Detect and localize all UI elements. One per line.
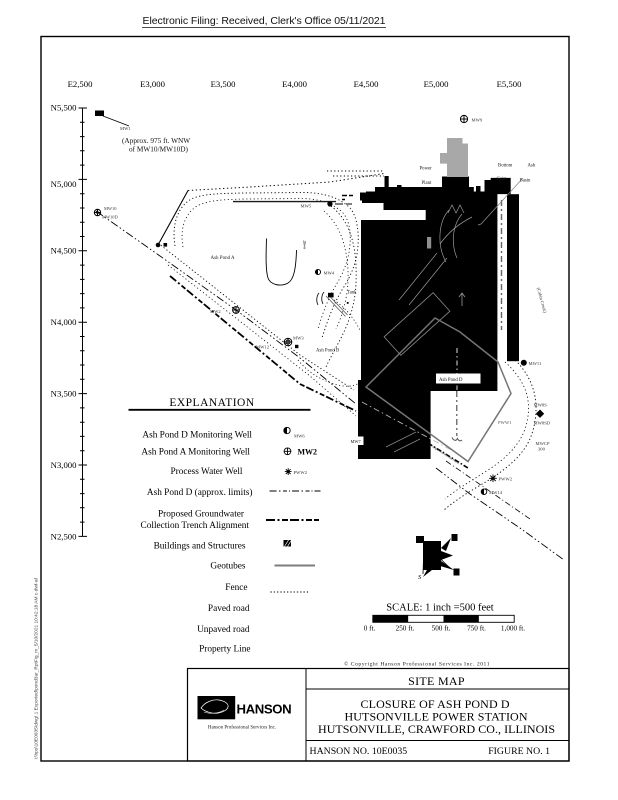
- svg-text:MW8SD: MW8SD: [534, 421, 551, 426]
- svg-text:Ash: Ash: [528, 164, 536, 169]
- svg-text:PWW2: PWW2: [499, 477, 513, 482]
- svg-text:MW8S: MW8S: [534, 403, 548, 408]
- svg-text:Proposed Groundwater: Proposed Groundwater: [158, 509, 245, 519]
- svg-text:MW7: MW7: [351, 439, 362, 444]
- svg-text:Paved road: Paved road: [208, 604, 250, 614]
- svg-text:E3,000: E3,000: [140, 79, 166, 89]
- svg-text:Ash Pond B: Ash Pond B: [316, 349, 339, 354]
- svg-text:I:\hps\10E0035\dwg\ 1 Exported: I:\hps\10E0035\dwg\ 1 Exported\pond3ar_R…: [34, 577, 40, 759]
- svg-text:1,000 ft.: 1,000 ft.: [501, 625, 525, 633]
- svg-text:750 ft.: 750 ft.: [467, 625, 486, 633]
- svg-text:N3,000: N3,000: [51, 460, 77, 470]
- svg-text:E5,500: E5,500: [497, 79, 523, 89]
- svg-text:Power: Power: [420, 167, 433, 172]
- svg-text:Buildings and Structures: Buildings and Structures: [154, 542, 246, 552]
- svg-text:N4,500: N4,500: [51, 246, 77, 256]
- svg-text:Ash Pond D: Ash Pond D: [439, 378, 463, 383]
- svg-text:N2,500: N2,500: [51, 532, 77, 542]
- svg-text:S: S: [418, 574, 422, 581]
- svg-text:MW14: MW14: [489, 490, 503, 495]
- svg-text:MW6: MW6: [294, 434, 305, 439]
- svg-text:SCALE: 1 inch =500 feet: SCALE: 1 inch =500 feet: [386, 603, 493, 614]
- svg-text:Ash Pond A Monitoring Well: Ash Pond A Monitoring Well: [141, 448, 250, 458]
- svg-text:Geotubes: Geotubes: [210, 561, 245, 571]
- svg-text:© Copyright Hanson Professi: © Copyright Hanson Professional Services…: [344, 661, 490, 668]
- svg-text:Plant: Plant: [422, 181, 433, 186]
- svg-text:E3,500: E3,500: [211, 79, 237, 89]
- svg-text:EXPLANATION: EXPLANATION: [169, 397, 255, 409]
- svg-text:PWW1: PWW1: [498, 420, 512, 425]
- svg-text:300: 300: [538, 447, 546, 452]
- svg-text:MW12: MW12: [256, 345, 270, 350]
- svg-text:MW4: MW4: [324, 271, 335, 276]
- svg-text:Ash Pond D Monitoring Well: Ash Pond D Monitoring Well: [142, 431, 252, 441]
- svg-text:MW2: MW2: [210, 309, 221, 314]
- svg-text:PWW2: PWW2: [294, 470, 308, 475]
- svg-text:MW1: MW1: [120, 126, 131, 131]
- svg-text:MW10D: MW10D: [102, 215, 118, 220]
- svg-text:Ash Pond A: Ash Pond A: [211, 256, 236, 261]
- svg-text:N4,000: N4,000: [51, 317, 77, 327]
- svg-text:Hanson Professional Services I: Hanson Professional Services Inc.: [208, 726, 276, 731]
- svg-text:Bottom: Bottom: [498, 164, 513, 169]
- svg-text:0 ft.: 0 ft.: [364, 625, 376, 633]
- svg-text:Fence: Fence: [225, 583, 247, 593]
- svg-text:N3,500: N3,500: [51, 389, 77, 399]
- svg-text:FIGURE NO. 1: FIGURE NO. 1: [488, 746, 550, 757]
- svg-text:MW9: MW9: [472, 118, 483, 123]
- svg-text:MW11: MW11: [529, 361, 543, 366]
- svg-text:E2,500: E2,500: [68, 79, 94, 89]
- svg-text:Property Line: Property Line: [199, 644, 250, 654]
- svg-text:Grim: Grim: [497, 177, 507, 182]
- svg-text:HUTSONVILLE, CRAWFORD CO., IL: HUTSONVILLE, CRAWFORD CO., ILLINOIS: [318, 722, 555, 736]
- svg-text:MW10: MW10: [104, 206, 117, 211]
- svg-text:Process Water Well: Process Water Well: [170, 467, 242, 477]
- svg-text:E5,000: E5,000: [424, 79, 450, 89]
- svg-text:MW2: MW2: [298, 448, 318, 457]
- svg-text:MWCP: MWCP: [536, 441, 550, 446]
- svg-text:SITE MAP: SITE MAP: [408, 674, 465, 688]
- svg-text:N5,000: N5,000: [51, 179, 77, 189]
- svg-text:Basin: Basin: [520, 179, 532, 184]
- svg-text:Unpaved road: Unpaved road: [197, 625, 250, 635]
- svg-text:E4,000: E4,000: [282, 79, 308, 89]
- svg-text:Collection Trench Alignment: Collection Trench Alignment: [141, 521, 250, 531]
- svg-text:HANSON: HANSON: [237, 702, 292, 717]
- svg-text:500 ft.: 500 ft.: [432, 625, 451, 633]
- svg-text:250 ft.: 250 ft.: [396, 625, 415, 633]
- svg-text:MW5: MW5: [301, 204, 312, 209]
- svg-text:unpaved access road: unpaved access road: [431, 444, 459, 464]
- svg-text:E4,500: E4,500: [354, 79, 380, 89]
- svg-text:Electronic Filing: Received, C: Electronic Filing: Received, Clerk's Off…: [143, 15, 386, 27]
- svg-text:N5,500: N5,500: [51, 103, 77, 113]
- svg-text:Tank: Tank: [347, 291, 357, 296]
- svg-text:(Cabin Creek): (Cabin Creek): [536, 287, 548, 314]
- svg-text:of MW10/MW10D): of MW10/MW10D): [129, 145, 189, 154]
- svg-text:MW3: MW3: [293, 336, 304, 341]
- svg-text:Ash Pond D (approx. limits): Ash Pond D (approx. limits): [147, 487, 253, 498]
- svg-text:HANSON NO. 10E0035: HANSON NO. 10E0035: [310, 746, 408, 757]
